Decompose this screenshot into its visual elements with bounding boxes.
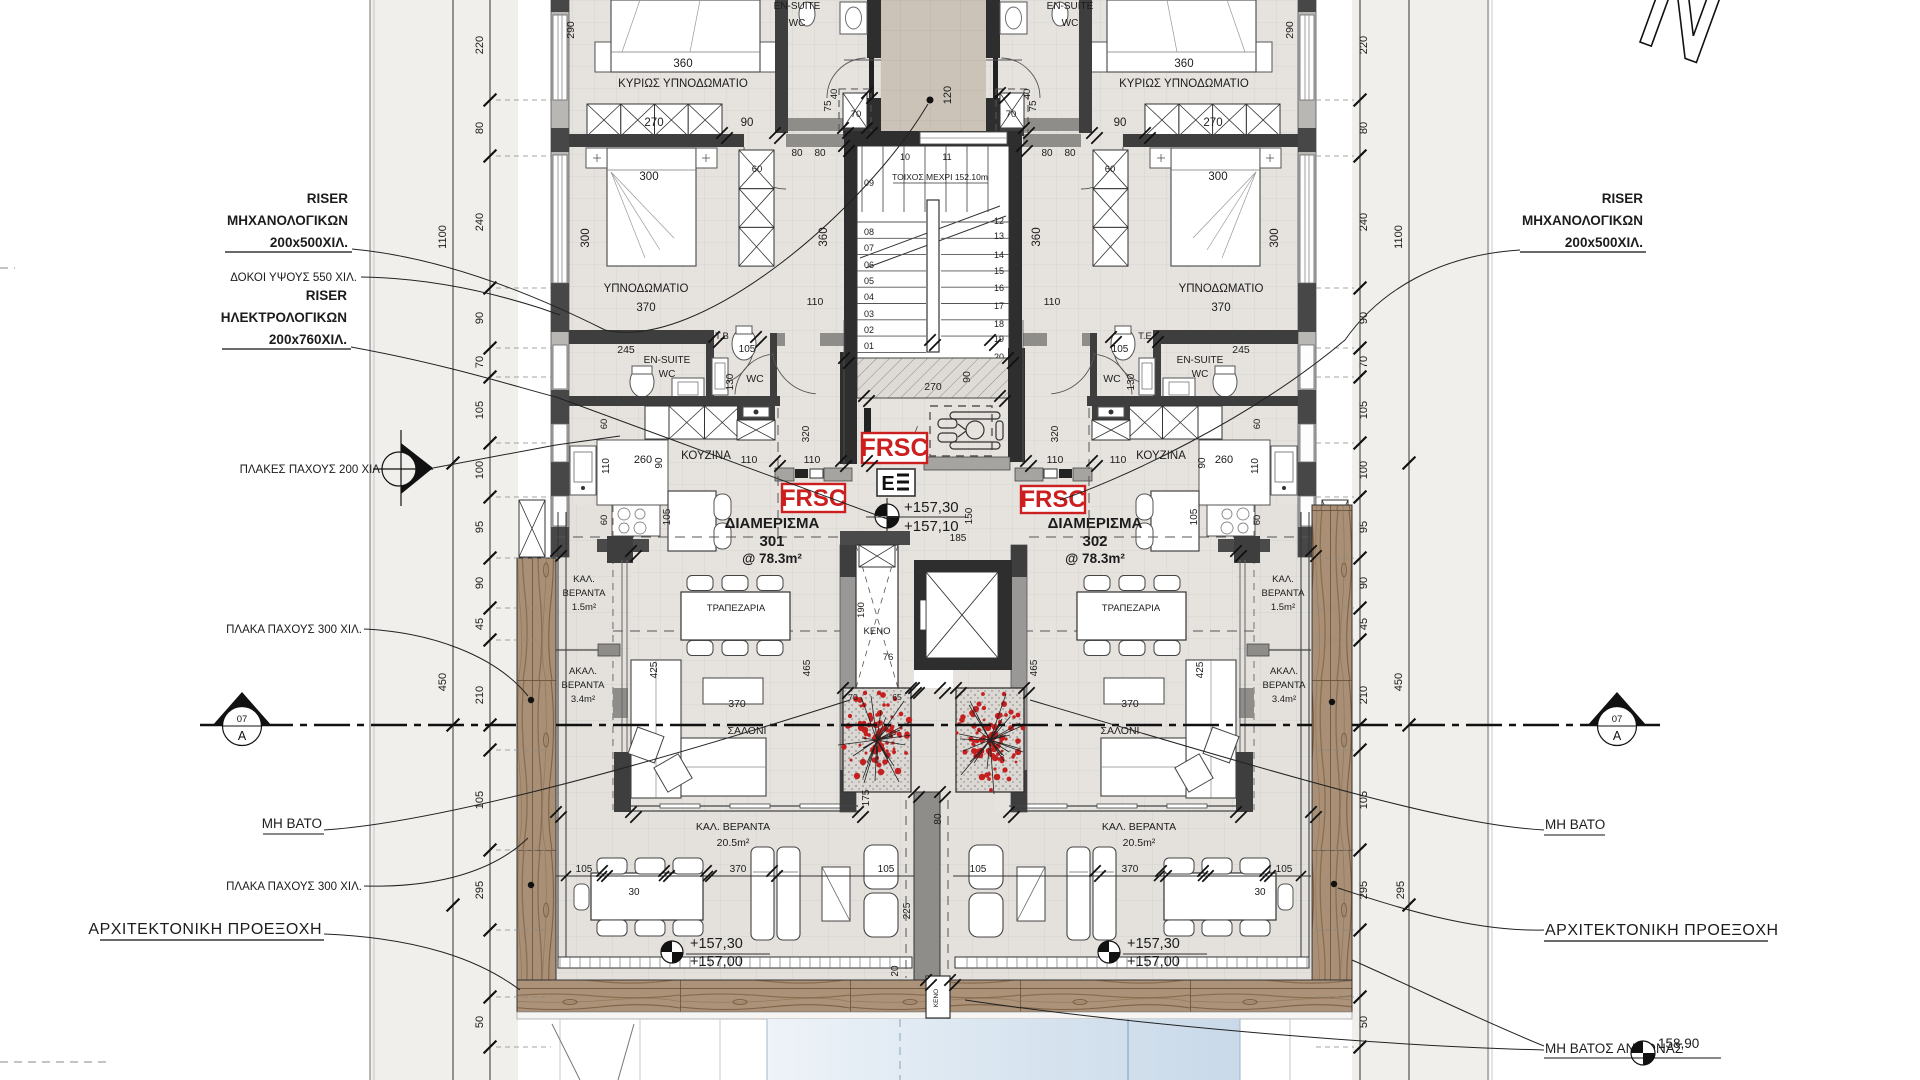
svg-text:ΚΥΡΙΩΣ ΥΠΝΟΔΩΜΑΤΙΟ: ΚΥΡΙΩΣ ΥΠΝΟΔΩΜΑΤΙΟ <box>618 78 748 90</box>
svg-text:105: 105 <box>878 864 895 875</box>
svg-text:190: 190 <box>856 602 867 618</box>
svg-text:80: 80 <box>474 122 486 134</box>
svg-text:175: 175 <box>861 789 872 806</box>
svg-text:ΚΕΝΟ: ΚΕΝΟ <box>933 989 940 1007</box>
svg-text:15: 15 <box>994 266 1004 276</box>
svg-text:110: 110 <box>804 454 821 466</box>
svg-text:225: 225 <box>902 902 913 919</box>
svg-text:110: 110 <box>601 458 612 474</box>
svg-text:07: 07 <box>864 243 874 253</box>
svg-text:ΚΑΛ. ΒΕΡΑΝΤΑ: ΚΑΛ. ΒΕΡΑΝΤΑ <box>696 821 770 833</box>
svg-text:40: 40 <box>829 89 840 100</box>
svg-text:105: 105 <box>1276 864 1293 875</box>
svg-text:ΜΗΧΑΝΟΛΟΓΙΚΩΝ: ΜΗΧΑΝΟΛΟΓΙΚΩΝ <box>1522 213 1643 228</box>
svg-text:360: 360 <box>1174 58 1193 70</box>
svg-text:295: 295 <box>1395 881 1407 899</box>
svg-text:A: A <box>238 729 247 743</box>
svg-text:45: 45 <box>1358 618 1370 630</box>
svg-text:120: 120 <box>942 86 954 104</box>
svg-text:03: 03 <box>864 309 874 319</box>
svg-text:105: 105 <box>576 864 593 875</box>
svg-text:110: 110 <box>741 454 758 466</box>
svg-text:E: E <box>881 473 894 495</box>
svg-text:08: 08 <box>864 227 874 237</box>
svg-text:80: 80 <box>933 813 944 825</box>
svg-text:ΚΑΛ.: ΚΑΛ. <box>573 574 595 585</box>
svg-text:270: 270 <box>1203 117 1222 129</box>
svg-text:1.5m²: 1.5m² <box>572 602 596 613</box>
svg-text:220: 220 <box>1358 36 1370 54</box>
svg-text:360: 360 <box>673 58 692 70</box>
svg-text:360: 360 <box>818 227 830 246</box>
svg-text:40: 40 <box>1022 89 1033 100</box>
svg-text:210: 210 <box>1358 686 1370 704</box>
svg-text:95: 95 <box>1358 521 1370 533</box>
svg-text:ΜΗ ΒΑΤΟ: ΜΗ ΒΑΤΟ <box>1545 817 1605 832</box>
svg-text:105: 105 <box>474 401 486 419</box>
svg-text:10: 10 <box>900 152 910 162</box>
svg-text:90: 90 <box>474 577 486 589</box>
svg-text:110: 110 <box>1250 458 1261 474</box>
svg-text:ΚΟΥΖΙΝΑ: ΚΟΥΖΙΝΑ <box>1136 450 1186 462</box>
svg-text:ΔΙΑΜΕΡΙΣΜΑ: ΔΙΑΜΕΡΙΣΜΑ <box>725 515 820 532</box>
svg-text:20.5m²: 20.5m² <box>717 837 750 849</box>
svg-text:80: 80 <box>1064 148 1076 159</box>
svg-text:ΚΑΛ. ΒΕΡΑΝΤΑ: ΚΑΛ. ΒΕΡΑΝΤΑ <box>1102 821 1176 833</box>
svg-text:EN-SUITE: EN-SUITE <box>1177 355 1224 366</box>
svg-text:@ 78.3m²: @ 78.3m² <box>1065 551 1125 566</box>
svg-text:@ 78.3m²: @ 78.3m² <box>742 551 802 566</box>
svg-text:105: 105 <box>1189 508 1200 525</box>
svg-text:290: 290 <box>1284 21 1296 39</box>
svg-text:210: 210 <box>474 686 486 704</box>
svg-text:70: 70 <box>1006 109 1017 120</box>
svg-text:+157,30: +157,30 <box>1127 936 1180 952</box>
svg-text:370: 370 <box>1211 302 1230 314</box>
svg-text:07: 07 <box>237 714 248 725</box>
svg-text:ΑΡΧΙΤΕΚΤΟΝΙΚΗ ΠΡΟΕΞΟΧΗ: ΑΡΧΙΤΕΚΤΟΝΙΚΗ ΠΡΟΕΞΟΧΗ <box>1545 922 1779 939</box>
svg-text:60: 60 <box>1105 164 1116 175</box>
svg-text:ΚΑΛ.: ΚΑΛ. <box>1272 574 1294 585</box>
svg-text:WC: WC <box>1062 18 1079 29</box>
svg-text:245: 245 <box>617 344 635 356</box>
svg-text:105: 105 <box>662 508 673 525</box>
svg-text:+157,00: +157,00 <box>1127 954 1180 970</box>
svg-text:FRSC: FRSC <box>781 485 846 512</box>
svg-text:20.5m²: 20.5m² <box>1123 837 1156 849</box>
svg-text:75: 75 <box>1028 100 1039 112</box>
svg-text:240: 240 <box>474 213 486 231</box>
svg-text:WC: WC <box>1103 373 1121 385</box>
svg-text:110: 110 <box>807 296 824 308</box>
svg-text:EN-SUITE: EN-SUITE <box>644 355 691 366</box>
svg-text:A: A <box>1613 729 1622 743</box>
svg-text:ΒΕΡΑΝΤΑ: ΒΕΡΑΝΤΑ <box>1262 588 1306 599</box>
svg-text:RISER: RISER <box>306 288 348 303</box>
svg-text:RISER: RISER <box>307 191 349 206</box>
svg-text:ΑΚΑΛ.: ΑΚΑΛ. <box>1270 666 1298 677</box>
svg-text:+157,00: +157,00 <box>690 954 743 970</box>
svg-text:80: 80 <box>1358 122 1370 134</box>
svg-text:45: 45 <box>474 618 486 630</box>
svg-text:WC: WC <box>659 369 676 380</box>
svg-text:75: 75 <box>823 100 834 112</box>
svg-text:465: 465 <box>802 659 813 676</box>
svg-text:WC: WC <box>1192 369 1209 380</box>
svg-text:13: 13 <box>994 231 1004 241</box>
svg-text:01: 01 <box>864 341 874 351</box>
svg-text:ΑΚΑΛ.: ΑΚΑΛ. <box>569 666 597 677</box>
svg-text:ΔΙΑΜΕΡΙΣΜΑ: ΔΙΑΜΕΡΙΣΜΑ <box>1048 515 1143 532</box>
svg-text:100: 100 <box>474 461 486 479</box>
svg-text:17: 17 <box>994 301 1004 311</box>
svg-text:200x500ΧΙΛ.: 200x500ΧΙΛ. <box>1565 235 1643 250</box>
svg-text:450: 450 <box>437 673 449 691</box>
svg-text:105: 105 <box>474 791 486 809</box>
svg-text:20: 20 <box>890 965 901 977</box>
svg-text:105: 105 <box>1112 344 1129 355</box>
svg-text:110: 110 <box>1110 454 1127 466</box>
svg-text:95: 95 <box>474 521 486 533</box>
svg-text:90: 90 <box>741 117 754 129</box>
svg-text:76: 76 <box>883 652 894 663</box>
svg-text:90: 90 <box>1358 312 1370 324</box>
svg-text:260: 260 <box>1215 454 1233 466</box>
svg-text:3.4m²: 3.4m² <box>1272 694 1296 705</box>
svg-text:+157,30: +157,30 <box>904 499 959 516</box>
svg-text:ΣΑΛΟΝΙ: ΣΑΛΟΝΙ <box>728 725 767 737</box>
svg-text:300: 300 <box>639 171 658 183</box>
svg-text:80: 80 <box>1041 148 1053 159</box>
svg-text:100: 100 <box>1358 461 1370 479</box>
svg-text:240: 240 <box>1358 213 1370 231</box>
svg-text:80: 80 <box>791 148 803 159</box>
svg-text:1100: 1100 <box>437 225 449 249</box>
svg-text:ΗΛΕΚΤΡΟΛΟΓΙΚΩΝ: ΗΛΕΚΤΡΟΛΟΓΙΚΩΝ <box>221 310 347 325</box>
svg-text:02: 02 <box>864 325 874 335</box>
svg-text:14: 14 <box>994 250 1004 260</box>
svg-text:295: 295 <box>474 881 486 899</box>
svg-text:425: 425 <box>1195 661 1206 678</box>
svg-text:60: 60 <box>1252 515 1263 526</box>
svg-text:130: 130 <box>1126 373 1137 390</box>
svg-text:ΥΠΝΟΔΩΜΑΤΙΟ: ΥΠΝΟΔΩΜΑΤΙΟ <box>1179 283 1264 295</box>
svg-text:300: 300 <box>1208 171 1227 183</box>
svg-text:245: 245 <box>1232 344 1250 356</box>
svg-text:18: 18 <box>994 319 1004 329</box>
svg-text:90: 90 <box>961 371 973 383</box>
svg-text:90: 90 <box>1358 577 1370 589</box>
svg-text:ΤΟΙΧΟΣ ΜΕΧΡΙ 152.10m: ΤΟΙΧΟΣ ΜΕΧΡΙ 152.10m <box>892 172 988 182</box>
svg-text:158,90: 158,90 <box>1658 1036 1699 1051</box>
svg-text:ΚΥΡΙΩΣ ΥΠΝΟΔΩΜΑΤΙΟ: ΚΥΡΙΩΣ ΥΠΝΟΔΩΜΑΤΙΟ <box>1119 78 1249 90</box>
svg-text:30: 30 <box>628 887 640 898</box>
svg-text:12: 12 <box>994 216 1004 226</box>
svg-text:05: 05 <box>864 276 874 286</box>
svg-text:1.5m²: 1.5m² <box>1271 602 1295 613</box>
svg-text:105: 105 <box>1358 791 1370 809</box>
svg-text:105: 105 <box>970 864 987 875</box>
svg-text:11: 11 <box>942 152 951 162</box>
svg-text:270: 270 <box>924 381 942 393</box>
svg-text:ΠΛΑΚΕΣ ΠΑΧΟΥΣ 200 ΧΙΛ: ΠΛΑΚΕΣ ΠΑΧΟΥΣ 200 ΧΙΛ <box>240 464 381 476</box>
svg-text:150: 150 <box>964 507 975 524</box>
svg-text:270: 270 <box>644 117 663 129</box>
svg-text:1100: 1100 <box>1393 225 1405 249</box>
svg-text:WC: WC <box>789 18 806 29</box>
svg-text:110: 110 <box>1047 454 1064 466</box>
svg-text:220: 220 <box>474 36 486 54</box>
svg-text:ΒΕΡΑΝΤΑ: ΒΕΡΑΝΤΑ <box>563 588 607 599</box>
svg-text:30: 30 <box>1254 887 1266 898</box>
svg-text:425: 425 <box>649 661 660 678</box>
svg-text:70: 70 <box>851 109 862 120</box>
svg-text:ΔΟΚΟΙ ΥΨΟΥΣ 550 ΧΙΛ.: ΔΟΚΟΙ ΥΨΟΥΣ 550 ΧΙΛ. <box>230 272 357 284</box>
svg-text:60: 60 <box>599 419 610 430</box>
svg-text:07: 07 <box>1612 714 1623 725</box>
svg-text:370: 370 <box>728 698 746 710</box>
svg-text:ΜΗ ΒΑΤΟ: ΜΗ ΒΑΤΟ <box>262 816 322 831</box>
svg-text:60: 60 <box>1252 419 1263 430</box>
svg-text:260: 260 <box>634 454 652 466</box>
svg-text:ΤΡΑΠΕΖΑΡΙΑ: ΤΡΑΠΕΖΑΡΙΑ <box>707 603 766 614</box>
svg-text:70: 70 <box>474 356 486 368</box>
svg-text:200x760ΧΙΛ.: 200x760ΧΙΛ. <box>269 332 347 347</box>
svg-text:+157,30: +157,30 <box>690 936 743 952</box>
svg-text:90: 90 <box>1197 457 1208 469</box>
svg-text:370: 370 <box>636 302 655 314</box>
svg-text:105: 105 <box>739 344 756 355</box>
svg-text:ΒΕΡΑΝΤΑ: ΒΕΡΑΝΤΑ <box>1263 680 1307 691</box>
svg-text:60: 60 <box>599 515 610 526</box>
svg-text:60: 60 <box>752 164 763 175</box>
svg-text:80: 80 <box>814 148 826 159</box>
svg-text:16: 16 <box>994 283 1004 293</box>
svg-text:290: 290 <box>565 21 577 39</box>
svg-text:130: 130 <box>725 373 736 390</box>
svg-text:450: 450 <box>1393 673 1405 691</box>
svg-text:ΜΗΧΑΝΟΛΟΓΙΚΩΝ: ΜΗΧΑΝΟΛΟΓΙΚΩΝ <box>227 213 348 228</box>
svg-text:ΒΕΡΑΝΤΑ: ΒΕΡΑΝΤΑ <box>562 680 606 691</box>
svg-text:360: 360 <box>1031 227 1043 246</box>
svg-text:70: 70 <box>1358 356 1370 368</box>
svg-text:50: 50 <box>1358 1016 1370 1028</box>
svg-text:465: 465 <box>1029 659 1040 676</box>
svg-text:320: 320 <box>1050 425 1061 442</box>
svg-text:300: 300 <box>1269 228 1281 247</box>
svg-text:FRSC: FRSC <box>1020 486 1085 513</box>
svg-text:04: 04 <box>864 292 874 302</box>
svg-text:370: 370 <box>730 864 747 875</box>
svg-text:06: 06 <box>864 260 874 270</box>
svg-text:3.4m²: 3.4m² <box>571 694 595 705</box>
svg-text:301: 301 <box>759 533 784 550</box>
svg-text:RISER: RISER <box>1602 191 1644 206</box>
svg-text:370: 370 <box>1121 698 1139 710</box>
svg-text:185: 185 <box>950 533 967 544</box>
svg-text:ΑΡΧΙΤΕΚΤΟΝΙΚΗ ΠΡΟΕΞΟΧΗ: ΑΡΧΙΤΕΚΤΟΝΙΚΗ ΠΡΟΕΞΟΧΗ <box>88 921 322 938</box>
svg-text:EN-SUITE: EN-SUITE <box>774 1 821 12</box>
svg-text:ΥΠΝΟΔΩΜΑΤΙΟ: ΥΠΝΟΔΩΜΑΤΙΟ <box>604 283 689 295</box>
svg-text:ΠΛΑΚΑ ΠΑΧΟΥΣ 300 ΧΙΛ.: ΠΛΑΚΑ ΠΑΧΟΥΣ 300 ΧΙΛ. <box>226 881 362 893</box>
svg-text:200x500ΧΙΛ.: 200x500ΧΙΛ. <box>270 235 348 250</box>
svg-text:ΠΛΑΚΑ ΠΑΧΟΥΣ 300 ΧΙΛ.: ΠΛΑΚΑ ΠΑΧΟΥΣ 300 ΧΙΛ. <box>226 624 362 636</box>
svg-text:90: 90 <box>654 457 665 469</box>
svg-text:ΚΕΝΟ: ΚΕΝΟ <box>864 626 891 637</box>
svg-text:WC: WC <box>746 373 764 385</box>
svg-text:ΤΡΑΠΕΖΑΡΙΑ: ΤΡΑΠΕΖΑΡΙΑ <box>1102 603 1161 614</box>
svg-text:110: 110 <box>1044 296 1061 308</box>
svg-text:320: 320 <box>801 425 812 442</box>
svg-text:90: 90 <box>474 312 486 324</box>
svg-text:EN-SUITE: EN-SUITE <box>1047 1 1094 12</box>
svg-text:300: 300 <box>580 228 592 247</box>
svg-text:90: 90 <box>1114 117 1127 129</box>
svg-text:302: 302 <box>1082 533 1107 550</box>
svg-text:370: 370 <box>1122 864 1139 875</box>
svg-text:65: 65 <box>892 692 902 702</box>
svg-text:50: 50 <box>474 1016 486 1028</box>
svg-text:105: 105 <box>1358 401 1370 419</box>
